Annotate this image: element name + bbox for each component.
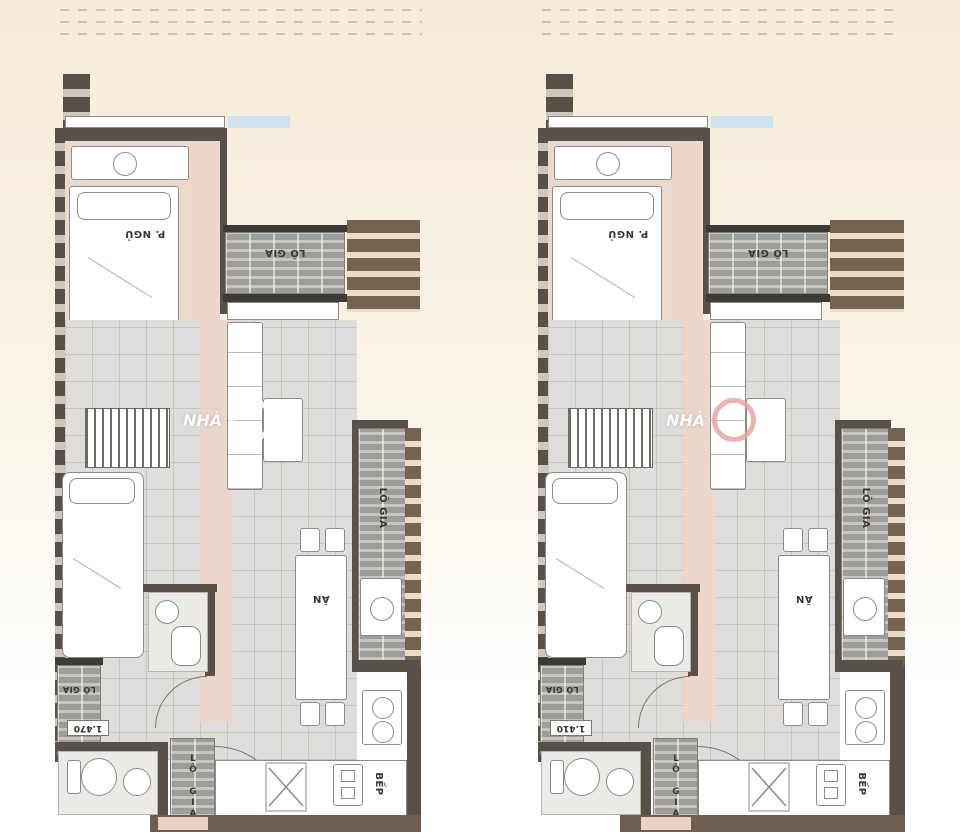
watermark-text: NHÀ: [183, 411, 222, 430]
window-sill: [548, 116, 708, 128]
toilet-icon: [654, 626, 684, 666]
loggia-exterior-wall: [830, 220, 904, 312]
sink-icon: [606, 768, 634, 796]
exterior-wall: [890, 666, 905, 818]
loggia-top-floor: [225, 232, 345, 294]
label-bedroom: P. NGỦ: [85, 222, 205, 246]
wardrobe-closet: [85, 408, 170, 468]
label-loggia-top: LÔ GIA: [245, 244, 325, 262]
label-dining: ĂN: [775, 588, 833, 610]
unit-plan-left: P. NGỦ LÔ GIA ĂN: [55, 70, 423, 838]
washing-machine-icon: [843, 578, 885, 636]
stove-icon: [265, 762, 307, 812]
exterior-wall: [407, 666, 421, 818]
loggia-exterior-wall: [888, 428, 905, 668]
dimension-line: [542, 33, 902, 35]
toilet-tank-icon: [550, 760, 564, 794]
bedroom-top-wall: [548, 128, 708, 141]
dining-table: [295, 555, 347, 700]
floor-plan-sheet: P. NGỦ LÔ GIA ĂN: [0, 0, 960, 839]
dimension-value: 1.470: [67, 720, 109, 736]
toilet-tank-icon: [67, 760, 81, 794]
sink-unit: [362, 690, 402, 745]
washing-machine-icon: [360, 578, 402, 636]
burner-icon: [341, 787, 355, 799]
sink-icon: [123, 768, 151, 796]
window-bench: [227, 302, 339, 320]
lamp-icon: [113, 152, 137, 176]
chair: [808, 528, 828, 552]
loggia-wall: [55, 658, 103, 665]
chair: [808, 702, 828, 726]
sink-bowl-icon: [372, 697, 394, 719]
dimension-line: [542, 9, 902, 11]
loggia-top-floor: [708, 232, 828, 294]
watermark-logo-icon: [229, 398, 273, 442]
entry-threshold: [641, 817, 691, 830]
window-glass: [228, 116, 290, 128]
loggia-wall: [538, 658, 586, 665]
pillow: [69, 478, 135, 504]
chair: [783, 702, 803, 726]
dining-table: [778, 555, 830, 700]
wc-wall: [55, 742, 165, 751]
pillow: [77, 192, 171, 220]
dimension-value: 1.410: [550, 720, 592, 736]
sink-bowl-icon: [855, 697, 877, 719]
watermark: NHÀ: [666, 398, 756, 442]
chair: [300, 528, 320, 552]
window-sill: [65, 116, 225, 128]
label-loggia-service: LÔ GIA: [536, 682, 588, 696]
loggia-bottom-wall: [223, 294, 347, 302]
dimension-line: [60, 33, 422, 35]
dimension-line: [60, 9, 422, 11]
loggia-top-wall: [706, 225, 830, 232]
sink-unit: [845, 690, 885, 745]
bed-linen-crease: [87, 257, 152, 298]
toilet-icon: [564, 758, 600, 796]
window-bench: [710, 302, 822, 320]
entry-threshold: [158, 817, 208, 830]
washer-drum-icon: [853, 597, 877, 621]
lamp-icon: [596, 152, 620, 176]
wc-wall: [538, 742, 648, 751]
loggia-top-wall: [223, 225, 347, 232]
burner-icon: [341, 770, 355, 782]
chair: [325, 702, 345, 726]
bedroom-top-wall: [65, 128, 225, 141]
sink-bowl-icon: [855, 721, 877, 743]
window-glass: [711, 116, 773, 128]
label-bedroom: P. NGỦ: [568, 222, 688, 246]
label-loggia-service: LÔ GIA: [53, 682, 105, 696]
loggia-exterior-wall: [347, 220, 420, 312]
toilet-icon: [171, 626, 201, 666]
hob-icon: [816, 764, 846, 806]
stove-icon: [748, 762, 790, 812]
pillow: [560, 192, 654, 220]
wardrobe-closet: [568, 408, 653, 468]
washer-drum-icon: [370, 597, 394, 621]
unit-plan-right: P. NGỦ LÔ GIA ĂN: [538, 70, 906, 838]
dimension-line: [542, 21, 902, 23]
chair: [325, 528, 345, 552]
chair: [300, 702, 320, 726]
label-loggia-side: LÔ GIA: [375, 486, 391, 530]
sink-icon: [638, 600, 662, 624]
burner-icon: [824, 770, 838, 782]
dimension-line: [60, 21, 422, 23]
wc-wall: [157, 742, 168, 818]
wc-wall: [640, 742, 651, 818]
loggia-bottom-wall: [706, 294, 830, 302]
watermark: NHÀ: [183, 398, 273, 442]
label-dining: ĂN: [292, 588, 350, 610]
label-loggia-side: LÔ GIA: [858, 486, 874, 530]
hob-icon: [333, 764, 363, 806]
loggia-exterior-wall: [405, 428, 421, 668]
watermark-text: NHÀ: [666, 411, 705, 430]
label-kitchen: BẾP: [371, 766, 387, 802]
burner-icon: [824, 787, 838, 799]
label-loggia-top: LÔ GIA: [728, 244, 808, 262]
chair: [783, 528, 803, 552]
sink-icon: [155, 600, 179, 624]
bed-linen-crease: [570, 257, 635, 298]
pillow: [552, 478, 618, 504]
label-kitchen: BẾP: [854, 766, 870, 802]
toilet-icon: [81, 758, 117, 796]
bed-linen-crease: [556, 558, 604, 589]
sink-bowl-icon: [372, 721, 394, 743]
bed-linen-crease: [73, 558, 121, 589]
watermark-logo-icon: [712, 398, 756, 442]
